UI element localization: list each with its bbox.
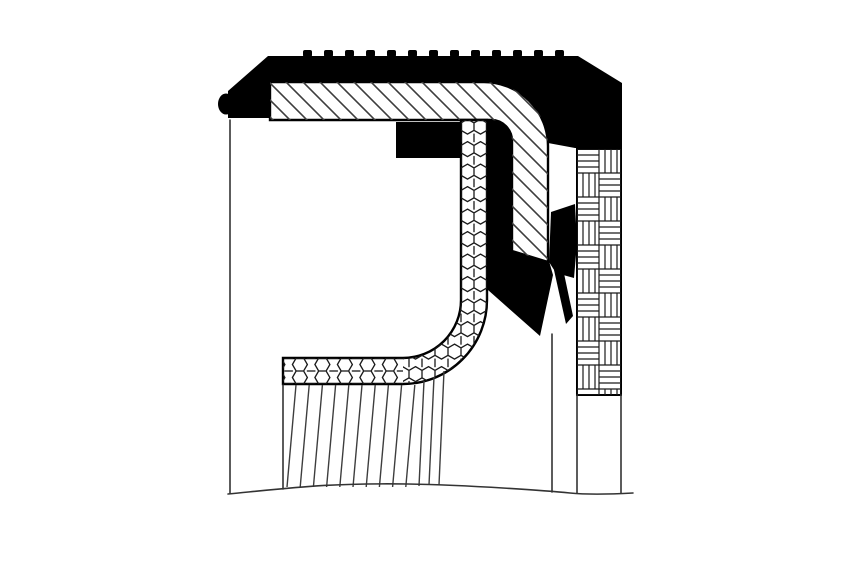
serration-tooth — [303, 50, 312, 57]
fan-hatch-line — [406, 385, 415, 487]
fan-hatch-line — [379, 385, 388, 487]
serration-tooth — [324, 50, 333, 57]
serration-tooth — [387, 50, 396, 57]
fan-hatch-line — [429, 377, 434, 485]
serration-tooth — [534, 50, 543, 57]
case-left-bump — [218, 94, 234, 115]
fan-hatch-line — [327, 385, 336, 487]
serration-tooth — [450, 50, 459, 57]
fan-hatch-line — [419, 381, 424, 486]
fan-hatch-line — [300, 385, 309, 487]
basket-weave-hatch — [577, 149, 621, 395]
fan-hatch-line — [353, 385, 362, 487]
press-fit-surface-column — [577, 149, 621, 395]
serration-tooth — [429, 50, 438, 57]
lip-side-blob — [549, 204, 577, 278]
serration-tooth — [513, 50, 522, 57]
fan-hatch-line — [366, 385, 375, 487]
shaft-break-line — [228, 484, 633, 494]
serration-tooth — [492, 50, 501, 57]
serration-tooth — [408, 50, 417, 57]
serration-tooth — [366, 50, 375, 57]
diagram-canvas: Radial shaft seal cross-section diagram — [0, 0, 861, 574]
serration-teeth — [303, 50, 564, 57]
fan-hatch-line — [439, 371, 444, 485]
fan-hatch-line — [393, 385, 402, 487]
lip-contact-fan — [287, 371, 444, 487]
fan-hatch-line — [287, 385, 296, 487]
fan-hatch-line — [313, 385, 322, 487]
lip-shoulder-block — [396, 122, 460, 158]
serration-tooth — [555, 50, 564, 57]
honeycomb-hatch-horizontal — [283, 358, 403, 384]
serration-tooth — [345, 50, 354, 57]
spring-cavity-band — [283, 120, 487, 384]
seal-cross-section-diagram: Radial shaft seal cross-section diagram — [0, 0, 861, 574]
fan-hatch-line — [340, 385, 349, 487]
serration-tooth — [471, 50, 480, 57]
